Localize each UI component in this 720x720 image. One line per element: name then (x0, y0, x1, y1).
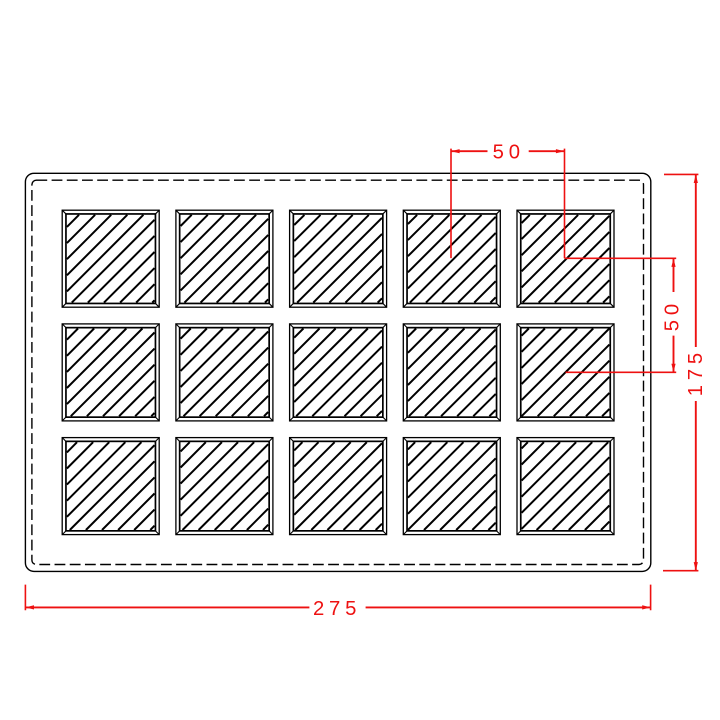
svg-text:50: 50 (662, 299, 684, 331)
svg-text:275: 275 (313, 598, 361, 620)
svg-text:50: 50 (493, 142, 525, 164)
svg-text:175: 175 (685, 348, 707, 396)
